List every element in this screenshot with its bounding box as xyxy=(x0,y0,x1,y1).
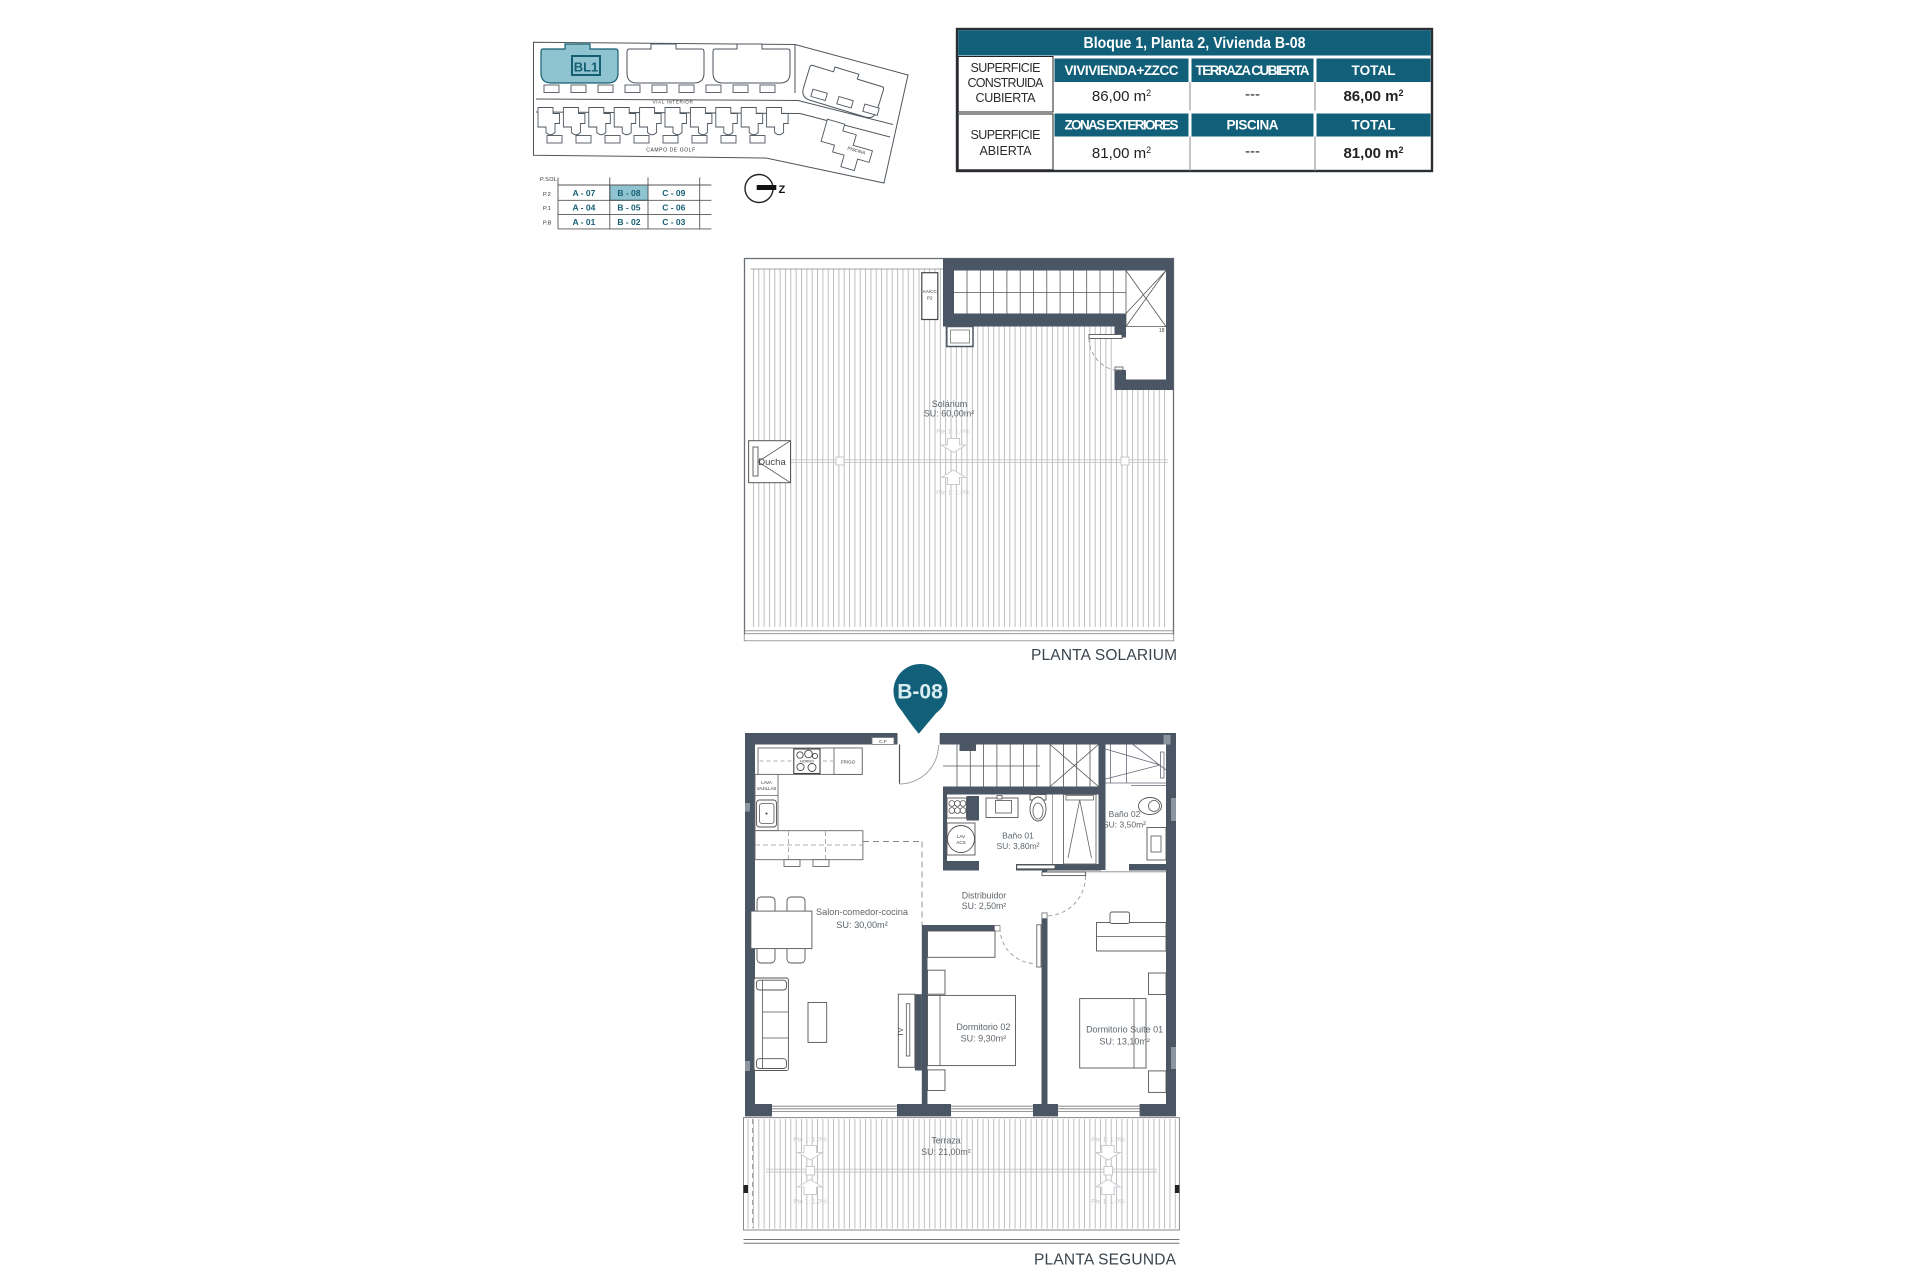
svg-text:A - 01: A - 01 xyxy=(572,217,595,227)
svg-text:ZONAS EXTERIORES: ZONAS EXTERIORES xyxy=(1065,118,1179,133)
svg-text:A - 04: A - 04 xyxy=(572,203,595,213)
svg-text:Ducha: Ducha xyxy=(758,457,786,468)
svg-text:VIAL INTERIOR: VIAL INTERIOR xyxy=(653,100,694,105)
svg-text:SU: 3,50m²: SU: 3,50m² xyxy=(1103,820,1146,830)
svg-text:FRIGO: FRIGO xyxy=(841,760,856,765)
svg-text:Distribuidor: Distribuidor xyxy=(962,891,1007,901)
svg-text:PLANTA SEGUNDA: PLANTA SEGUNDA xyxy=(1034,1252,1177,1269)
svg-text:SUPERFICIE: SUPERFICIE xyxy=(971,61,1041,75)
svg-text:Dormitorio Suite 01: Dormitorio Suite 01 xyxy=(1086,1025,1163,1035)
svg-text:---: --- xyxy=(1245,86,1260,103)
svg-text:PISCINA: PISCINA xyxy=(1227,118,1279,133)
svg-text:A - 07: A - 07 xyxy=(572,188,595,198)
svg-text:Bloque 1, Planta 2, Vivienda B: Bloque 1, Planta 2, Vivienda B-08 xyxy=(1084,35,1306,52)
svg-text:C - 06: C - 06 xyxy=(662,203,685,213)
svg-text:Z: Z xyxy=(779,184,786,196)
svg-text:TV: TV xyxy=(898,1027,905,1036)
svg-text:B-08: B-08 xyxy=(897,681,943,704)
svg-text:BL1: BL1 xyxy=(574,60,599,75)
svg-text:CAMPO DE GOLF: CAMPO DE GOLF xyxy=(646,148,695,154)
svg-text:86,00 m2: 86,00 m2 xyxy=(1092,88,1151,105)
svg-text:CUBIERTA: CUBIERTA xyxy=(976,91,1037,105)
svg-text:P2: P2 xyxy=(927,296,933,301)
svg-text:P.SOL: P.SOL xyxy=(540,177,557,183)
svg-text:86,00 m2: 86,00 m2 xyxy=(1343,88,1403,105)
svg-text:SU: 30,00m²: SU: 30,00m² xyxy=(836,920,888,930)
svg-text:Solárium: Solárium xyxy=(932,399,968,409)
svg-text:C - 09: C - 09 xyxy=(662,188,685,198)
svg-text:VIVIVIENDA+ZZCC: VIVIVIENDA+ZZCC xyxy=(1065,63,1179,78)
svg-text:C.F: C.F xyxy=(879,739,887,745)
svg-text:CONSTRUIDA: CONSTRUIDA xyxy=(968,76,1045,90)
svg-text:81,00 m2: 81,00 m2 xyxy=(1092,145,1151,162)
svg-text:VAJILLAS: VAJILLAS xyxy=(757,786,777,791)
svg-text:SU: 13,10m²: SU: 13,10m² xyxy=(1099,1037,1150,1047)
svg-text:18: 18 xyxy=(1159,328,1165,334)
svg-text:Pte 1: 1.0%: Pte 1: 1.0% xyxy=(936,490,970,497)
svg-text:81,00 m2: 81,00 m2 xyxy=(1343,145,1403,162)
svg-text:TOTAL: TOTAL xyxy=(1352,118,1396,133)
svg-text:HORNO: HORNO xyxy=(800,760,814,764)
svg-text:PLANTA SOLARIUM: PLANTA SOLARIUM xyxy=(1031,647,1177,664)
svg-text:TERRAZA CUBIERTA: TERRAZA CUBIERTA xyxy=(1196,63,1310,78)
svg-text:SU: 21,00m²: SU: 21,00m² xyxy=(921,1147,970,1157)
svg-text:P.1: P.1 xyxy=(543,206,551,212)
svg-text:P.B: P.B xyxy=(543,220,552,226)
svg-text:SU: 2,50m²: SU: 2,50m² xyxy=(962,901,1007,911)
svg-text:Dormitorio 02: Dormitorio 02 xyxy=(956,1022,1010,1032)
svg-text:SU: 3,80m²: SU: 3,80m² xyxy=(997,841,1040,851)
svg-text:ABIERTA: ABIERTA xyxy=(980,144,1033,158)
svg-text:P.2: P.2 xyxy=(543,192,551,198)
svg-text:ACS: ACS xyxy=(956,840,965,845)
svg-text:Pte 1: 1.0%: Pte 1: 1.0% xyxy=(1091,1199,1125,1206)
svg-text:SU: 60,00m²: SU: 60,00m² xyxy=(924,409,975,419)
svg-text:Baño 01: Baño 01 xyxy=(1002,831,1034,841)
svg-text:LAV: LAV xyxy=(957,834,966,839)
svg-text:SUPERFICIE: SUPERFICIE xyxy=(971,128,1041,142)
svg-text:TOTAL: TOTAL xyxy=(1352,63,1396,78)
svg-text:SU: 9,30m²: SU: 9,30m² xyxy=(961,1034,1007,1044)
svg-text:Baño 02: Baño 02 xyxy=(1109,809,1141,819)
svg-text:---: --- xyxy=(1245,143,1260,160)
svg-text:Pte 1: 1.0%: Pte 1: 1.0% xyxy=(793,1199,827,1206)
svg-text:Pte 1: 1.0%: Pte 1: 1.0% xyxy=(793,1137,827,1144)
svg-text:B - 08: B - 08 xyxy=(617,188,640,198)
svg-text:B - 05: B - 05 xyxy=(617,203,640,213)
svg-text:Salon-comedor-cocina: Salon-comedor-cocina xyxy=(816,907,909,917)
svg-text:C - 03: C - 03 xyxy=(662,217,685,227)
svg-text:AA/CC: AA/CC xyxy=(923,289,938,294)
svg-text:B - 02: B - 02 xyxy=(617,217,640,227)
svg-text:Pte 1: 1.0%: Pte 1: 1.0% xyxy=(1091,1137,1125,1144)
svg-text:Terraza: Terraza xyxy=(931,1136,960,1146)
svg-text:LAVA: LAVA xyxy=(761,780,772,785)
svg-text:Pte 1: 1.0%: Pte 1: 1.0% xyxy=(936,429,970,436)
